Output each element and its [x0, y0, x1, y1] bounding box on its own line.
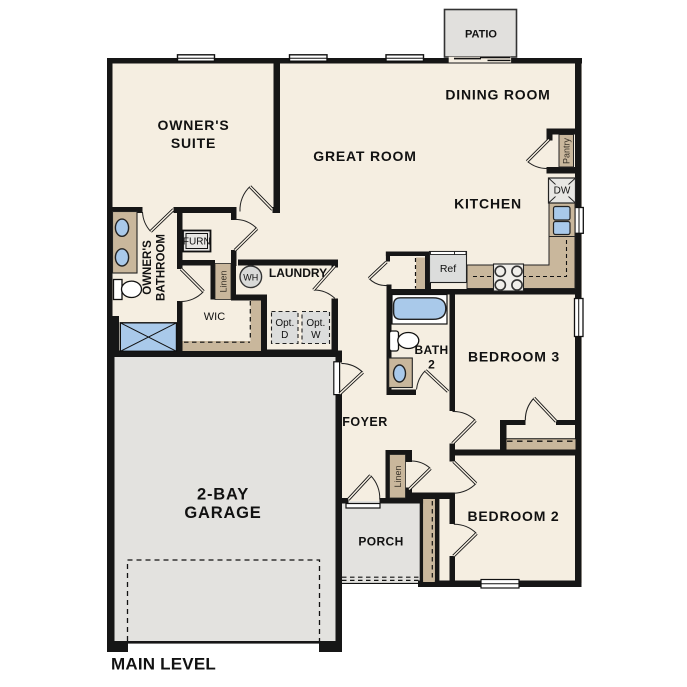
svg-text:DW: DW — [554, 186, 571, 197]
svg-text:FURN: FURN — [183, 237, 211, 248]
svg-text:FOYER: FOYER — [342, 415, 388, 429]
svg-text:GREAT ROOM: GREAT ROOM — [313, 148, 416, 164]
svg-text:GARAGE: GARAGE — [184, 504, 261, 522]
svg-text:2: 2 — [428, 358, 435, 372]
svg-text:OWNER'S: OWNER'S — [142, 240, 154, 295]
svg-text:PATIO: PATIO — [465, 29, 497, 41]
svg-text:Opt.: Opt. — [275, 318, 294, 329]
svg-text:BATHROOM: BATHROOM — [156, 234, 168, 301]
svg-text:BEDROOM 3: BEDROOM 3 — [468, 349, 560, 365]
svg-text:D: D — [281, 330, 288, 341]
svg-text:LAUNDRY: LAUNDRY — [269, 266, 327, 280]
svg-text:SUITE: SUITE — [171, 135, 216, 151]
svg-text:W: W — [311, 330, 321, 341]
svg-text:WIC: WIC — [204, 311, 225, 323]
svg-text:Linen: Linen — [393, 465, 403, 487]
svg-text:WH: WH — [243, 272, 258, 282]
svg-text:Ref: Ref — [440, 263, 456, 275]
svg-text:Pantry: Pantry — [561, 137, 571, 164]
svg-text:Linen: Linen — [219, 270, 229, 292]
svg-text:BEDROOM 2: BEDROOM 2 — [468, 508, 560, 524]
svg-text:DINING ROOM: DINING ROOM — [445, 87, 550, 103]
svg-text:MAIN LEVEL: MAIN LEVEL — [111, 655, 216, 674]
svg-text:BATH: BATH — [414, 343, 448, 357]
svg-text:OWNER'S: OWNER'S — [158, 117, 230, 133]
svg-text:2-BAY: 2-BAY — [197, 486, 249, 504]
svg-text:Opt.: Opt. — [306, 318, 325, 329]
svg-text:PORCH: PORCH — [358, 535, 403, 549]
svg-text:KITCHEN: KITCHEN — [454, 196, 522, 212]
